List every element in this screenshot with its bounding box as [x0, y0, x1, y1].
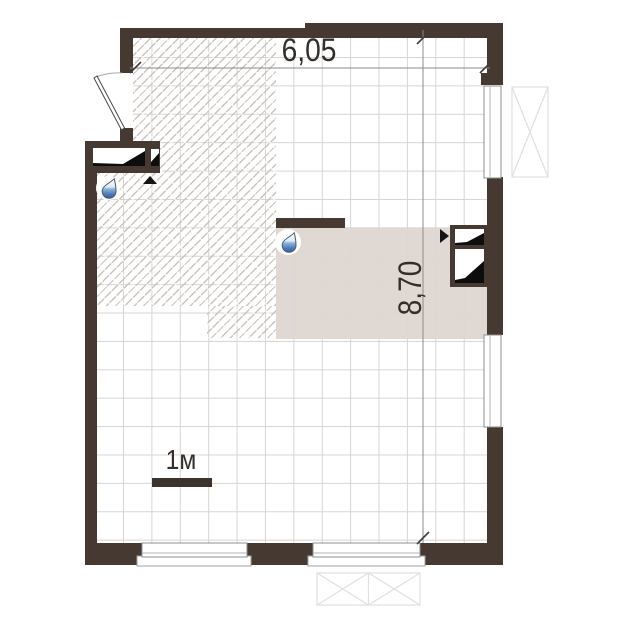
- balcony-bottom-icon: [317, 573, 420, 605]
- water-drop-icon-2: [275, 229, 301, 255]
- vent-shaft-right-icon: [450, 225, 488, 287]
- width-dimension-label: 6,05: [265, 34, 353, 66]
- window-right-bottom: [484, 335, 501, 427]
- balcony-right-icon: [512, 87, 548, 177]
- direction-triangle-up: [143, 176, 157, 184]
- water-drop-icon-1: [96, 176, 120, 200]
- scale-label: 1м: [146, 446, 216, 474]
- window-bottom-left: [137, 543, 251, 566]
- plan-symbols-layer: [0, 0, 632, 632]
- scale-bar: [152, 478, 212, 487]
- entry-door-icon: [94, 73, 125, 130]
- window-bottom-right: [308, 543, 425, 566]
- direction-triangle-right: [440, 229, 449, 243]
- height-dimension-label: 8,70: [394, 244, 426, 332]
- floor-plan-canvas: 6,05 8,70 1м: [0, 0, 632, 632]
- vent-shaft-left-icon: [85, 141, 160, 173]
- window-right-top: [484, 86, 501, 178]
